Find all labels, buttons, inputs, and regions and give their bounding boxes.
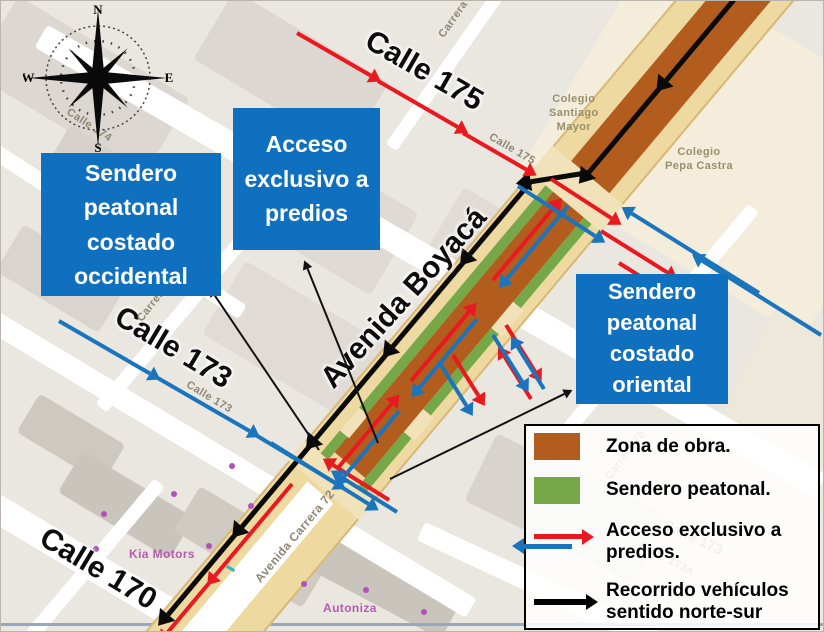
legend-row-sendero: Sendero peatonal.: [534, 477, 812, 504]
legend-label: Zona de obra.: [606, 436, 731, 458]
legend-row-acceso: Acceso exclusivo a predios.: [534, 520, 812, 564]
legend-label: Recorrido vehículos sentido norte-sur: [606, 580, 812, 624]
callout-sendero-occidental: Sendero peatonal costado occidental: [41, 153, 221, 296]
poi-dot: [101, 511, 107, 517]
poi-dot: [206, 543, 212, 549]
label-kia-motors: Kia Motors: [129, 547, 195, 562]
callout-acceso-predios: Acceso exclusivo a predios: [233, 108, 380, 250]
poi-dot: [421, 609, 427, 615]
label-autoniza: Autoniza: [323, 601, 377, 616]
map-legend: Zona de obra. Sendero peatonal. Acceso e…: [524, 424, 820, 630]
compass-rose: N E S W: [23, 3, 173, 153]
compass-w: W: [23, 70, 35, 85]
poi-dot: [363, 587, 369, 593]
red-arrow-icon: [534, 534, 582, 539]
legend-label: Acceso exclusivo a predios.: [606, 520, 812, 564]
compass-n: N: [93, 3, 103, 17]
sendero-peatonal-swatch: [534, 477, 580, 504]
black-arrow-icon: [534, 599, 586, 605]
traffic-detour-map: Calle 175 Calle 173 Calle 170 Avenida Bo…: [0, 0, 824, 632]
poi-dot: [171, 491, 177, 497]
blue-arrow-icon: [524, 544, 572, 549]
zona-de-obra-swatch: [534, 433, 580, 460]
legend-row-zona-obra: Zona de obra.: [534, 433, 812, 460]
compass-e: E: [165, 70, 173, 85]
poi-dot: [301, 581, 307, 587]
legend-label: Sendero peatonal.: [606, 479, 771, 501]
legend-row-recorrido: Recorrido vehículos sentido norte-sur: [534, 580, 812, 624]
label-colegio-pepa: Colegio Pepa Castra: [665, 146, 733, 174]
label-colegio-santiago: Colegio Santiago Mayor: [549, 93, 599, 134]
callout-sendero-oriental: Sendero peatonal costado oriental: [576, 274, 728, 404]
poi-dot: [229, 463, 235, 469]
compass-s: S: [94, 140, 101, 153]
